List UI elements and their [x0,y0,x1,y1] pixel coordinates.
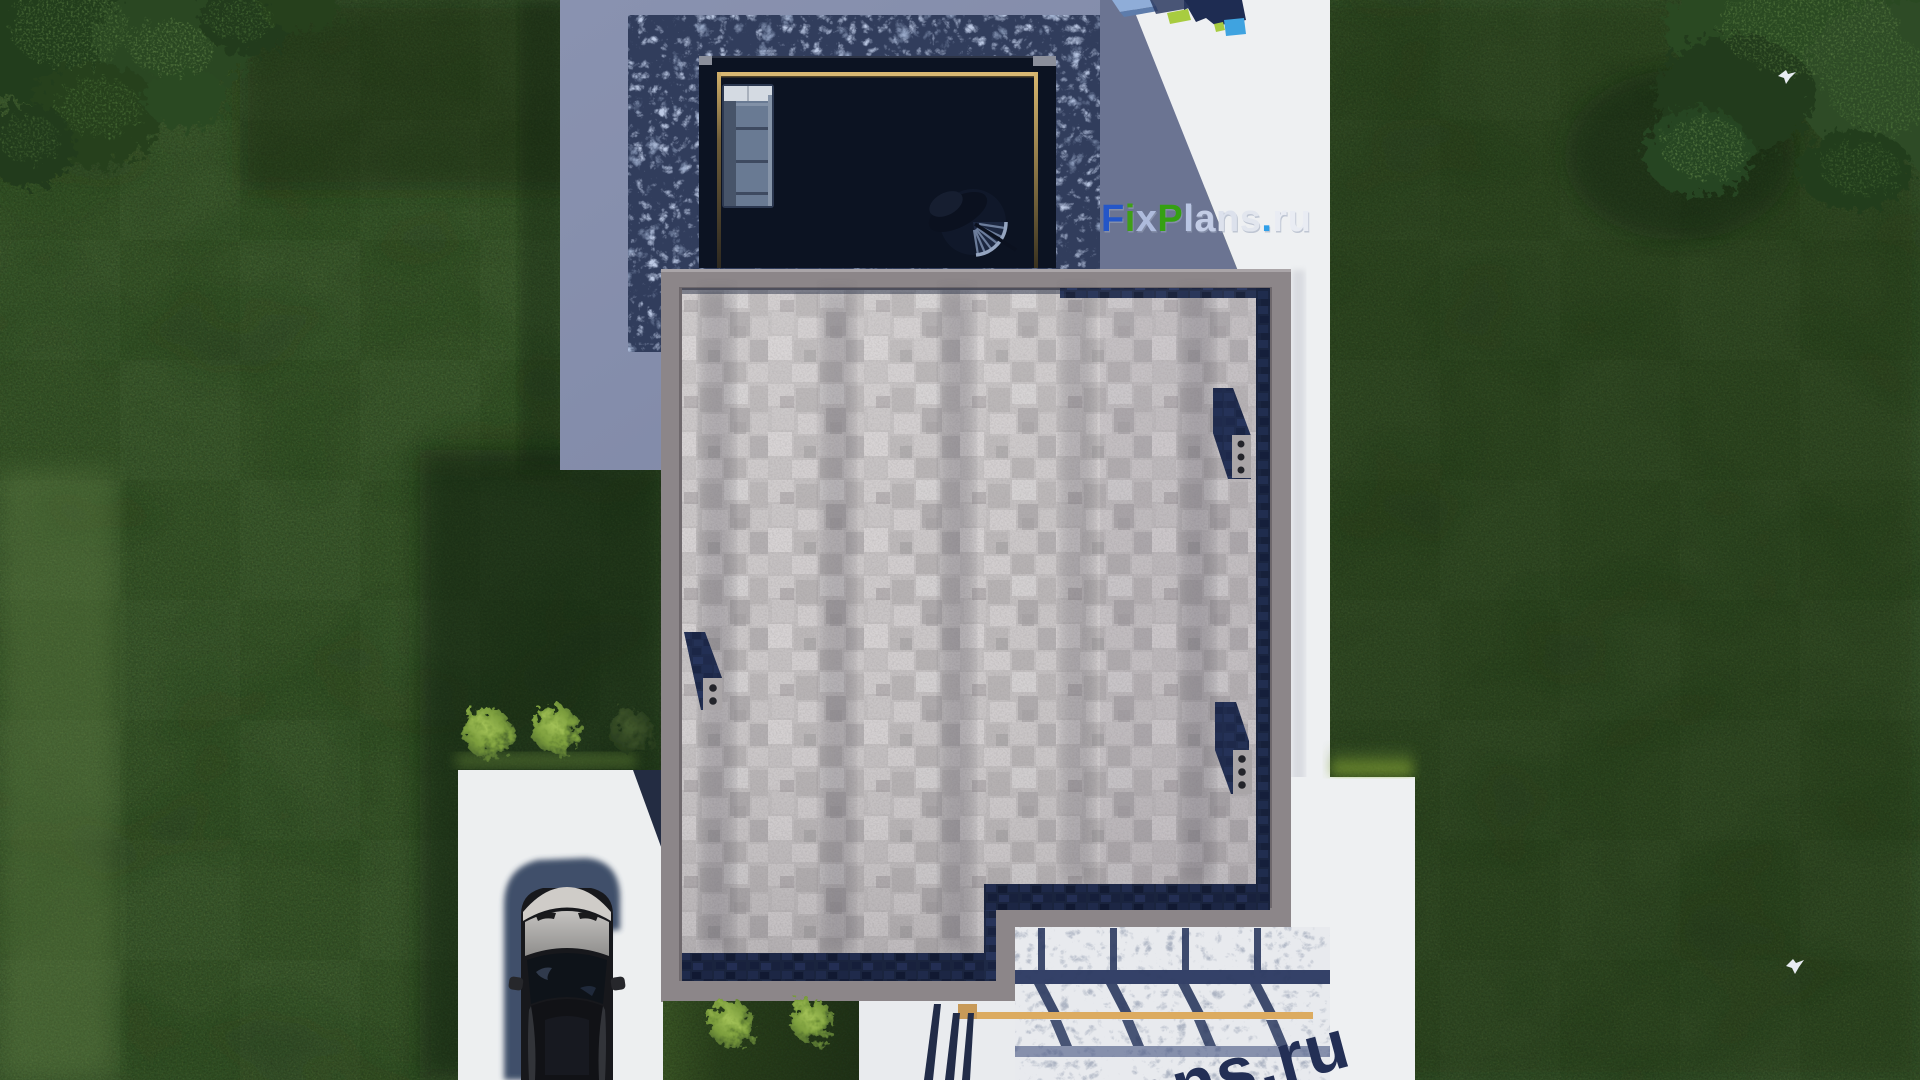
svg-text:FixPlans.ru: FixPlans.ru [1101,198,1311,240]
